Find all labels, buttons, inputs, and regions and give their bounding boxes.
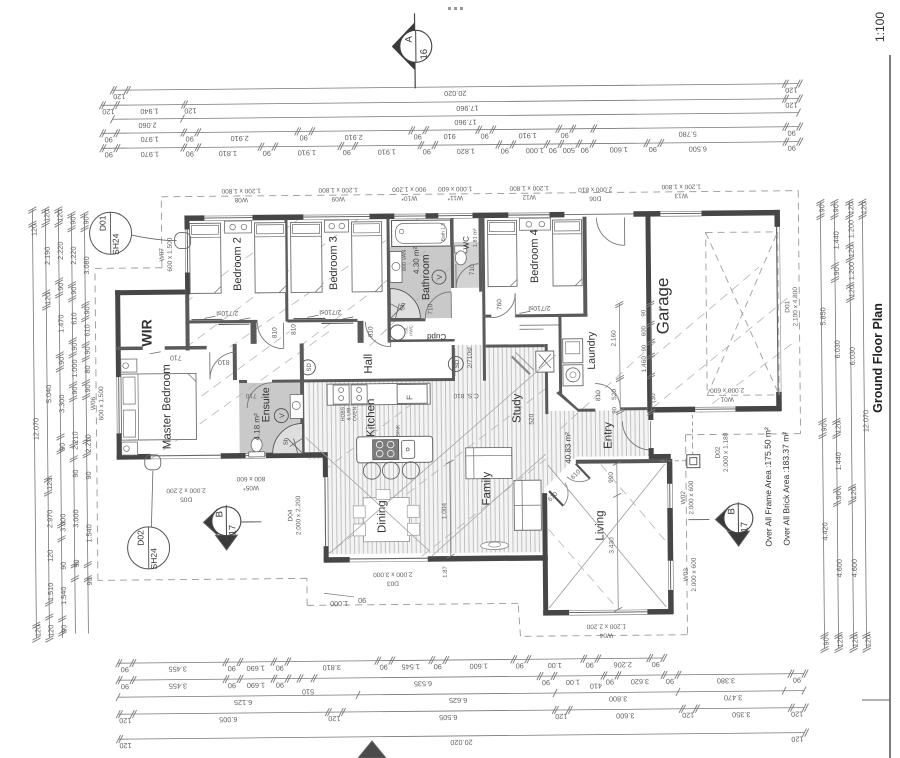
svg-text:90: 90 xyxy=(819,423,828,431)
svg-text:810: 810 xyxy=(271,327,278,338)
svg-text:3.455: 3.455 xyxy=(169,665,187,674)
svg-text:90: 90 xyxy=(72,559,81,567)
svg-text:1.910: 1.910 xyxy=(298,148,316,157)
svg-text:Over All Frame Area :175.50 m²: Over All Frame Area :175.50 m² xyxy=(762,427,773,547)
svg-text:3.620: 3.620 xyxy=(631,677,649,686)
svg-text:6.500: 6.500 xyxy=(689,145,707,154)
svg-text:1.970: 1.970 xyxy=(141,150,159,159)
svg-text:520: 520 xyxy=(611,389,618,400)
svg-text:810: 810 xyxy=(595,390,602,401)
svg-text:90: 90 xyxy=(649,145,657,154)
svg-text:90: 90 xyxy=(276,664,284,673)
svg-text:120: 120 xyxy=(328,714,340,723)
svg-text:W13: W13 xyxy=(674,192,688,199)
svg-text:90: 90 xyxy=(263,149,271,158)
svg-text:90: 90 xyxy=(821,637,830,645)
svg-text:120: 120 xyxy=(850,635,859,647)
svg-text:3.080: 3.080 xyxy=(82,256,91,274)
svg-text:Dining: Dining xyxy=(376,500,388,533)
svg-text:D02: D02 xyxy=(135,530,145,546)
svg-text:1.540: 1.540 xyxy=(84,524,93,542)
svg-text:1.000: 1.000 xyxy=(330,599,348,608)
svg-text:90: 90 xyxy=(501,146,509,155)
svg-text:90: 90 xyxy=(121,665,129,674)
svg-text:B: B xyxy=(726,508,737,514)
svg-text:20.020: 20.020 xyxy=(444,89,466,98)
svg-text:90: 90 xyxy=(228,664,236,673)
svg-text:W04: W04 xyxy=(599,631,613,638)
svg-text:3.600: 3.600 xyxy=(616,711,634,720)
svg-text:2/710sl: 2/710sl xyxy=(528,304,550,311)
svg-text:W07: W07 xyxy=(159,248,166,262)
svg-text:1.87: 1.87 xyxy=(443,566,449,578)
svg-text:120: 120 xyxy=(46,625,55,637)
svg-text:90: 90 xyxy=(549,146,557,155)
svg-text:2.000 x 3.000: 2.000 x 3.000 xyxy=(373,570,413,577)
svg-text:90: 90 xyxy=(380,663,388,672)
svg-text:2.220: 2.220 xyxy=(69,246,78,264)
svg-text:4.600: 4.600 xyxy=(835,559,844,577)
svg-text:3.455: 3.455 xyxy=(169,682,187,691)
svg-text:90: 90 xyxy=(606,677,614,686)
svg-text:90: 90 xyxy=(58,443,67,451)
svg-text:90: 90 xyxy=(69,287,78,295)
svg-text:1.910: 1.910 xyxy=(518,131,536,140)
svg-text:Hall: Hall xyxy=(363,354,375,374)
svg-text:2.000 x 810: 2.000 x 810 xyxy=(578,185,612,192)
svg-text:610: 610 xyxy=(69,312,78,324)
svg-text:120: 120 xyxy=(113,92,125,101)
svg-text:W09: W09 xyxy=(331,195,345,202)
svg-text:90: 90 xyxy=(581,146,589,155)
svg-text:1.200 x 1.800: 1.200 x 1.800 xyxy=(509,184,549,191)
svg-text:17: 17 xyxy=(739,522,750,533)
svg-text:1.00: 1.00 xyxy=(548,661,562,670)
svg-text:2.190: 2.190 xyxy=(43,247,52,265)
svg-text:90: 90 xyxy=(85,577,94,585)
svg-text:1.200: 1.200 xyxy=(847,262,856,280)
svg-text:Master Bedroom: Master Bedroom xyxy=(161,364,174,449)
svg-text:1.510: 1.510 xyxy=(46,583,55,601)
svg-text:120: 120 xyxy=(849,487,858,499)
svg-text:6.030: 6.030 xyxy=(833,340,842,358)
svg-text:120: 120 xyxy=(555,712,567,721)
svg-text:710: 710 xyxy=(170,354,182,361)
svg-text:1.000: 1.000 xyxy=(526,146,544,155)
svg-text:90: 90 xyxy=(186,134,194,143)
svg-text:500: 500 xyxy=(563,146,575,155)
svg-text:5.850: 5.850 xyxy=(818,307,827,325)
svg-text:D04: D04 xyxy=(287,509,294,521)
svg-text:90: 90 xyxy=(70,343,79,351)
svg-text:90: 90 xyxy=(423,147,431,156)
svg-text:90: 90 xyxy=(561,131,569,140)
svg-text:1.81 m²: 1.81 m² xyxy=(473,228,479,247)
svg-text:2.100 x 4.800: 2.100 x 4.800 xyxy=(792,287,799,327)
svg-text:2.910: 2.910 xyxy=(231,134,249,143)
svg-text:17.960: 17.960 xyxy=(454,118,476,127)
svg-text:1.200 x 2.200: 1.200 x 2.200 xyxy=(586,622,626,629)
svg-text:D06: D06 xyxy=(589,195,601,202)
svg-text:20.020: 20.020 xyxy=(450,738,472,747)
svg-text:1.690: 1.690 xyxy=(247,681,265,690)
svg-text:W11*: W11* xyxy=(447,194,463,201)
svg-text:90: 90 xyxy=(831,204,840,212)
svg-text:910: 910 xyxy=(444,132,456,141)
svg-text:Bedroom 2: Bedroom 2 xyxy=(232,237,245,291)
svg-text:6.005: 6.005 xyxy=(219,715,237,724)
svg-text:1.820: 1.820 xyxy=(457,147,475,156)
svg-text:W06: W06 xyxy=(90,396,97,410)
svg-text:SH24: SH24 xyxy=(149,548,159,570)
svg-text:4.30 m²: 4.30 m² xyxy=(412,246,421,274)
svg-text:C.S. 810: C.S. 810 xyxy=(453,392,479,399)
svg-text:1.200 x 1.800: 1.200 x 1.800 xyxy=(661,183,701,190)
svg-text:1:100: 1:100 xyxy=(873,12,887,42)
svg-text:D01: D01 xyxy=(97,215,107,231)
svg-text:90: 90 xyxy=(834,491,843,499)
svg-text:3.810: 3.810 xyxy=(323,663,341,672)
svg-text:90: 90 xyxy=(642,344,648,351)
svg-text:90: 90 xyxy=(358,596,366,605)
svg-text:D02: D02 xyxy=(715,446,722,458)
svg-text:120: 120 xyxy=(791,735,803,744)
svg-text:120: 120 xyxy=(785,86,797,95)
svg-text:5.040: 5.040 xyxy=(44,385,53,403)
svg-text:1.000 x 600: 1.000 x 600 xyxy=(438,185,472,192)
svg-text:710: 710 xyxy=(427,303,434,314)
svg-text:120: 120 xyxy=(835,635,844,647)
svg-text:Sh: Sh xyxy=(284,438,290,445)
svg-text:B: B xyxy=(214,511,225,517)
svg-text:120: 120 xyxy=(46,550,55,562)
svg-text:W02: W02 xyxy=(680,491,687,505)
svg-text:120: 120 xyxy=(859,202,868,214)
svg-text:90: 90 xyxy=(788,144,796,153)
svg-text:W01: W01 xyxy=(720,395,734,402)
svg-text:2.000 x 600: 2.000 x 600 xyxy=(710,386,744,393)
svg-text:3.800: 3.800 xyxy=(609,694,627,703)
svg-text:120: 120 xyxy=(119,716,131,725)
svg-text:410: 410 xyxy=(590,682,602,691)
svg-text:2.220: 2.220 xyxy=(56,242,65,260)
svg-text:90: 90 xyxy=(83,346,92,354)
svg-text:6.030: 6.030 xyxy=(848,347,857,365)
svg-text:3.380: 3.380 xyxy=(717,676,735,685)
svg-text:90: 90 xyxy=(652,660,660,669)
svg-text:1.470: 1.470 xyxy=(56,315,65,333)
svg-text:120: 120 xyxy=(102,107,114,116)
svg-text:120: 120 xyxy=(119,741,131,750)
svg-text:90: 90 xyxy=(228,681,236,690)
svg-text:W05*: W05* xyxy=(243,484,259,491)
svg-text:1.540: 1.540 xyxy=(59,587,68,605)
svg-text:710: 710 xyxy=(245,392,256,399)
svg-text:3.470: 3.470 xyxy=(724,693,742,702)
svg-text:OVEN: OVEN xyxy=(352,406,358,421)
svg-text:2.206: 2.206 xyxy=(614,660,632,669)
svg-text:SD: SD xyxy=(307,362,313,371)
svg-text:1.970: 1.970 xyxy=(141,135,159,144)
svg-text:3.300: 3.300 xyxy=(57,395,66,413)
svg-text:Ground Floor Plan: Ground Floor Plan xyxy=(871,303,885,413)
svg-text:1.460: 1.460 xyxy=(641,356,648,373)
svg-text:1.200 x 1.800: 1.200 x 1.800 xyxy=(318,186,358,193)
svg-text:90: 90 xyxy=(59,625,68,633)
svg-text:90: 90 xyxy=(68,217,77,225)
svg-text:Study: Study xyxy=(511,393,523,423)
svg-text:90: 90 xyxy=(343,148,351,157)
svg-text:120: 120 xyxy=(42,210,51,222)
svg-text:Living: Living xyxy=(594,510,606,540)
svg-text:SH24: SH24 xyxy=(111,233,121,255)
svg-text:90: 90 xyxy=(71,469,80,477)
svg-text:1.000: 1.000 xyxy=(70,359,79,377)
svg-text:2.160: 2.160 xyxy=(611,330,618,347)
svg-text:1.440: 1.440 xyxy=(832,231,841,249)
svg-text:120: 120 xyxy=(847,285,856,297)
svg-text:F: F xyxy=(405,395,414,400)
svg-text:120: 120 xyxy=(791,710,803,719)
svg-text:2/710sl: 2/710sl xyxy=(467,347,474,369)
svg-text:2.000 x 2.200: 2.000 x 2.200 xyxy=(166,486,206,493)
svg-text:90: 90 xyxy=(276,681,284,690)
svg-text:Laundry: Laundry xyxy=(586,331,598,370)
svg-text:90: 90 xyxy=(70,386,79,394)
svg-text:W08: W08 xyxy=(234,196,248,203)
svg-text:120: 120 xyxy=(55,210,64,222)
svg-text:900 x 1.200: 900 x 1.200 xyxy=(392,185,426,192)
svg-text:710: 710 xyxy=(469,264,476,275)
svg-text:90: 90 xyxy=(832,267,841,275)
svg-text:17.960: 17.960 xyxy=(456,104,478,113)
svg-text:120: 120 xyxy=(863,635,872,647)
svg-text:90: 90 xyxy=(57,357,66,365)
svg-text:3.000: 3.000 xyxy=(58,514,67,532)
svg-text:17: 17 xyxy=(227,525,238,536)
svg-text:900 VAN: 900 VAN xyxy=(402,250,408,272)
svg-text:90: 90 xyxy=(434,662,442,671)
svg-text:1.600: 1.600 xyxy=(610,145,628,154)
svg-text:90: 90 xyxy=(56,283,65,291)
svg-text:1.940: 1.940 xyxy=(140,107,158,116)
svg-text:90: 90 xyxy=(105,150,113,159)
svg-text:W03: W03 xyxy=(683,568,690,582)
svg-text:600: 600 xyxy=(641,325,647,336)
svg-text:80: 80 xyxy=(83,365,92,373)
svg-text:1.200: 1.200 xyxy=(846,220,855,238)
svg-text:SD: SD xyxy=(455,359,461,368)
svg-text:Entry: Entry xyxy=(602,422,614,449)
svg-text:1.004: 1.004 xyxy=(441,503,448,520)
svg-text:V: V xyxy=(437,274,444,279)
svg-text:90: 90 xyxy=(300,133,308,142)
svg-text:90: 90 xyxy=(666,677,674,686)
svg-text:120: 120 xyxy=(833,421,842,433)
svg-text:1.690: 1.690 xyxy=(247,664,265,673)
svg-text:600 x 1.500: 600 x 1.500 xyxy=(98,386,105,420)
svg-text:520: 520 xyxy=(528,413,535,424)
svg-text:90: 90 xyxy=(81,216,90,224)
svg-text:1.440: 1.440 xyxy=(834,452,843,470)
svg-text:1.00: 1.00 xyxy=(566,678,580,687)
svg-text:2/710sl: 2/710sl xyxy=(216,309,238,316)
svg-text:Kitchen: Kitchen xyxy=(365,399,377,437)
svg-text:1.600: 1.600 xyxy=(470,662,488,671)
svg-text:610: 610 xyxy=(82,324,91,336)
svg-text:120: 120 xyxy=(184,106,196,115)
svg-text:90: 90 xyxy=(817,204,826,212)
svg-text:90: 90 xyxy=(516,661,524,670)
svg-text:Family: Family xyxy=(481,471,493,505)
svg-text:D01: D01 xyxy=(784,300,791,312)
svg-text:WC: WC xyxy=(462,236,471,250)
svg-text:600 x 1.500: 600 x 1.500 xyxy=(167,237,174,271)
svg-text:4.18 m²: 4.18 m² xyxy=(252,413,261,441)
svg-text:120: 120 xyxy=(682,711,694,720)
svg-text:1.810: 1.810 xyxy=(219,149,237,158)
svg-text:Garage: Garage xyxy=(653,278,673,335)
svg-text:90: 90 xyxy=(105,135,113,144)
svg-text:6.125: 6.125 xyxy=(234,698,252,707)
svg-text:810: 810 xyxy=(367,326,374,337)
svg-text:760: 760 xyxy=(496,299,503,310)
svg-text:2.000 x 2.200: 2.000 x 2.200 xyxy=(295,495,302,535)
svg-text:2.000 x 600: 2.000 x 600 xyxy=(688,480,695,514)
svg-text:12.070: 12.070 xyxy=(861,410,870,432)
svg-text:4.420: 4.420 xyxy=(820,522,829,540)
svg-text:40.83 m²: 40.83 m² xyxy=(564,432,573,464)
svg-text:2.210: 2.210 xyxy=(70,431,79,449)
svg-text:90: 90 xyxy=(59,562,68,570)
svg-text:1.545: 1.545 xyxy=(402,662,420,671)
svg-text:D03: D03 xyxy=(387,579,399,586)
svg-text:90: 90 xyxy=(788,129,796,138)
svg-text:W10*: W10* xyxy=(401,194,417,201)
svg-text:120: 120 xyxy=(785,101,797,110)
svg-text:Bath 1.8: Bath 1.8 xyxy=(440,223,446,242)
svg-text:2.000 x 600: 2.000 x 600 xyxy=(691,557,698,591)
svg-text:90: 90 xyxy=(793,676,801,685)
svg-text:90: 90 xyxy=(641,309,647,316)
svg-text:D05: D05 xyxy=(180,495,192,502)
svg-text:2.000 x 1.180: 2.000 x 1.180 xyxy=(723,432,730,472)
svg-text:12.070: 12.070 xyxy=(31,418,40,440)
svg-text:90: 90 xyxy=(186,149,194,158)
svg-text:810: 810 xyxy=(218,358,230,365)
svg-text:HWC: HWC xyxy=(408,324,413,336)
svg-text:120: 120 xyxy=(847,245,856,257)
svg-text:(30: (30 xyxy=(650,393,657,403)
svg-text:2.060: 2.060 xyxy=(138,121,156,130)
svg-text:90: 90 xyxy=(84,471,93,479)
svg-text:1.200 x 1.800: 1.200 x 1.800 xyxy=(221,187,261,194)
svg-text:90: 90 xyxy=(586,661,594,670)
svg-text:90: 90 xyxy=(481,132,489,141)
svg-text:90: 90 xyxy=(414,132,422,141)
svg-text:Sh: Sh xyxy=(400,303,406,310)
svg-text:V: V xyxy=(279,413,286,418)
svg-text:Over All Brick Area :183.37 m²: Over All Brick Area :183.37 m² xyxy=(781,432,792,546)
svg-text:Bedroom 3: Bedroom 3 xyxy=(328,236,341,290)
svg-text:90: 90 xyxy=(82,306,91,314)
svg-text:120: 120 xyxy=(29,224,38,236)
svg-text:Bedroom 4: Bedroom 4 xyxy=(529,229,542,283)
svg-text:Cupd: Cupd xyxy=(427,332,446,341)
svg-text:A: A xyxy=(404,35,415,42)
svg-text:120: 120 xyxy=(846,202,855,214)
svg-text:90: 90 xyxy=(121,682,129,691)
svg-text:6.505: 6.505 xyxy=(439,713,457,722)
svg-text:SINK: SINK xyxy=(395,424,401,436)
svg-text:810: 810 xyxy=(290,324,297,335)
svg-text:4.600: 4.600 xyxy=(850,559,859,577)
svg-text:16: 16 xyxy=(419,49,430,60)
svg-text:2.910: 2.910 xyxy=(345,133,363,142)
svg-text:90: 90 xyxy=(542,678,550,687)
svg-text:Bathroom: Bathroom xyxy=(420,254,432,300)
svg-text:2.970: 2.970 xyxy=(45,510,54,528)
svg-text:120: 120 xyxy=(45,478,54,490)
svg-text:800 x 600: 800 x 600 xyxy=(236,475,265,482)
svg-text:5.780: 5.780 xyxy=(678,130,696,139)
svg-text:120: 120 xyxy=(43,293,52,305)
svg-text:3.000: 3.000 xyxy=(71,509,80,527)
svg-text:Ensuite: Ensuite xyxy=(260,387,272,422)
svg-text:120: 120 xyxy=(33,625,42,637)
svg-text:6.625: 6.625 xyxy=(449,696,467,705)
svg-text:1.910: 1.910 xyxy=(378,148,396,157)
svg-text:90: 90 xyxy=(83,384,92,392)
svg-text:2.210: 2.210 xyxy=(84,434,93,452)
svg-text:2/710sl: 2/710sl xyxy=(319,308,341,315)
svg-text:90: 90 xyxy=(612,406,618,413)
svg-text:6.535: 6.535 xyxy=(414,679,432,688)
svg-text:W12: W12 xyxy=(522,193,536,200)
svg-text:WIR: WIR xyxy=(138,319,154,346)
svg-text:3.350: 3.350 xyxy=(732,710,750,719)
